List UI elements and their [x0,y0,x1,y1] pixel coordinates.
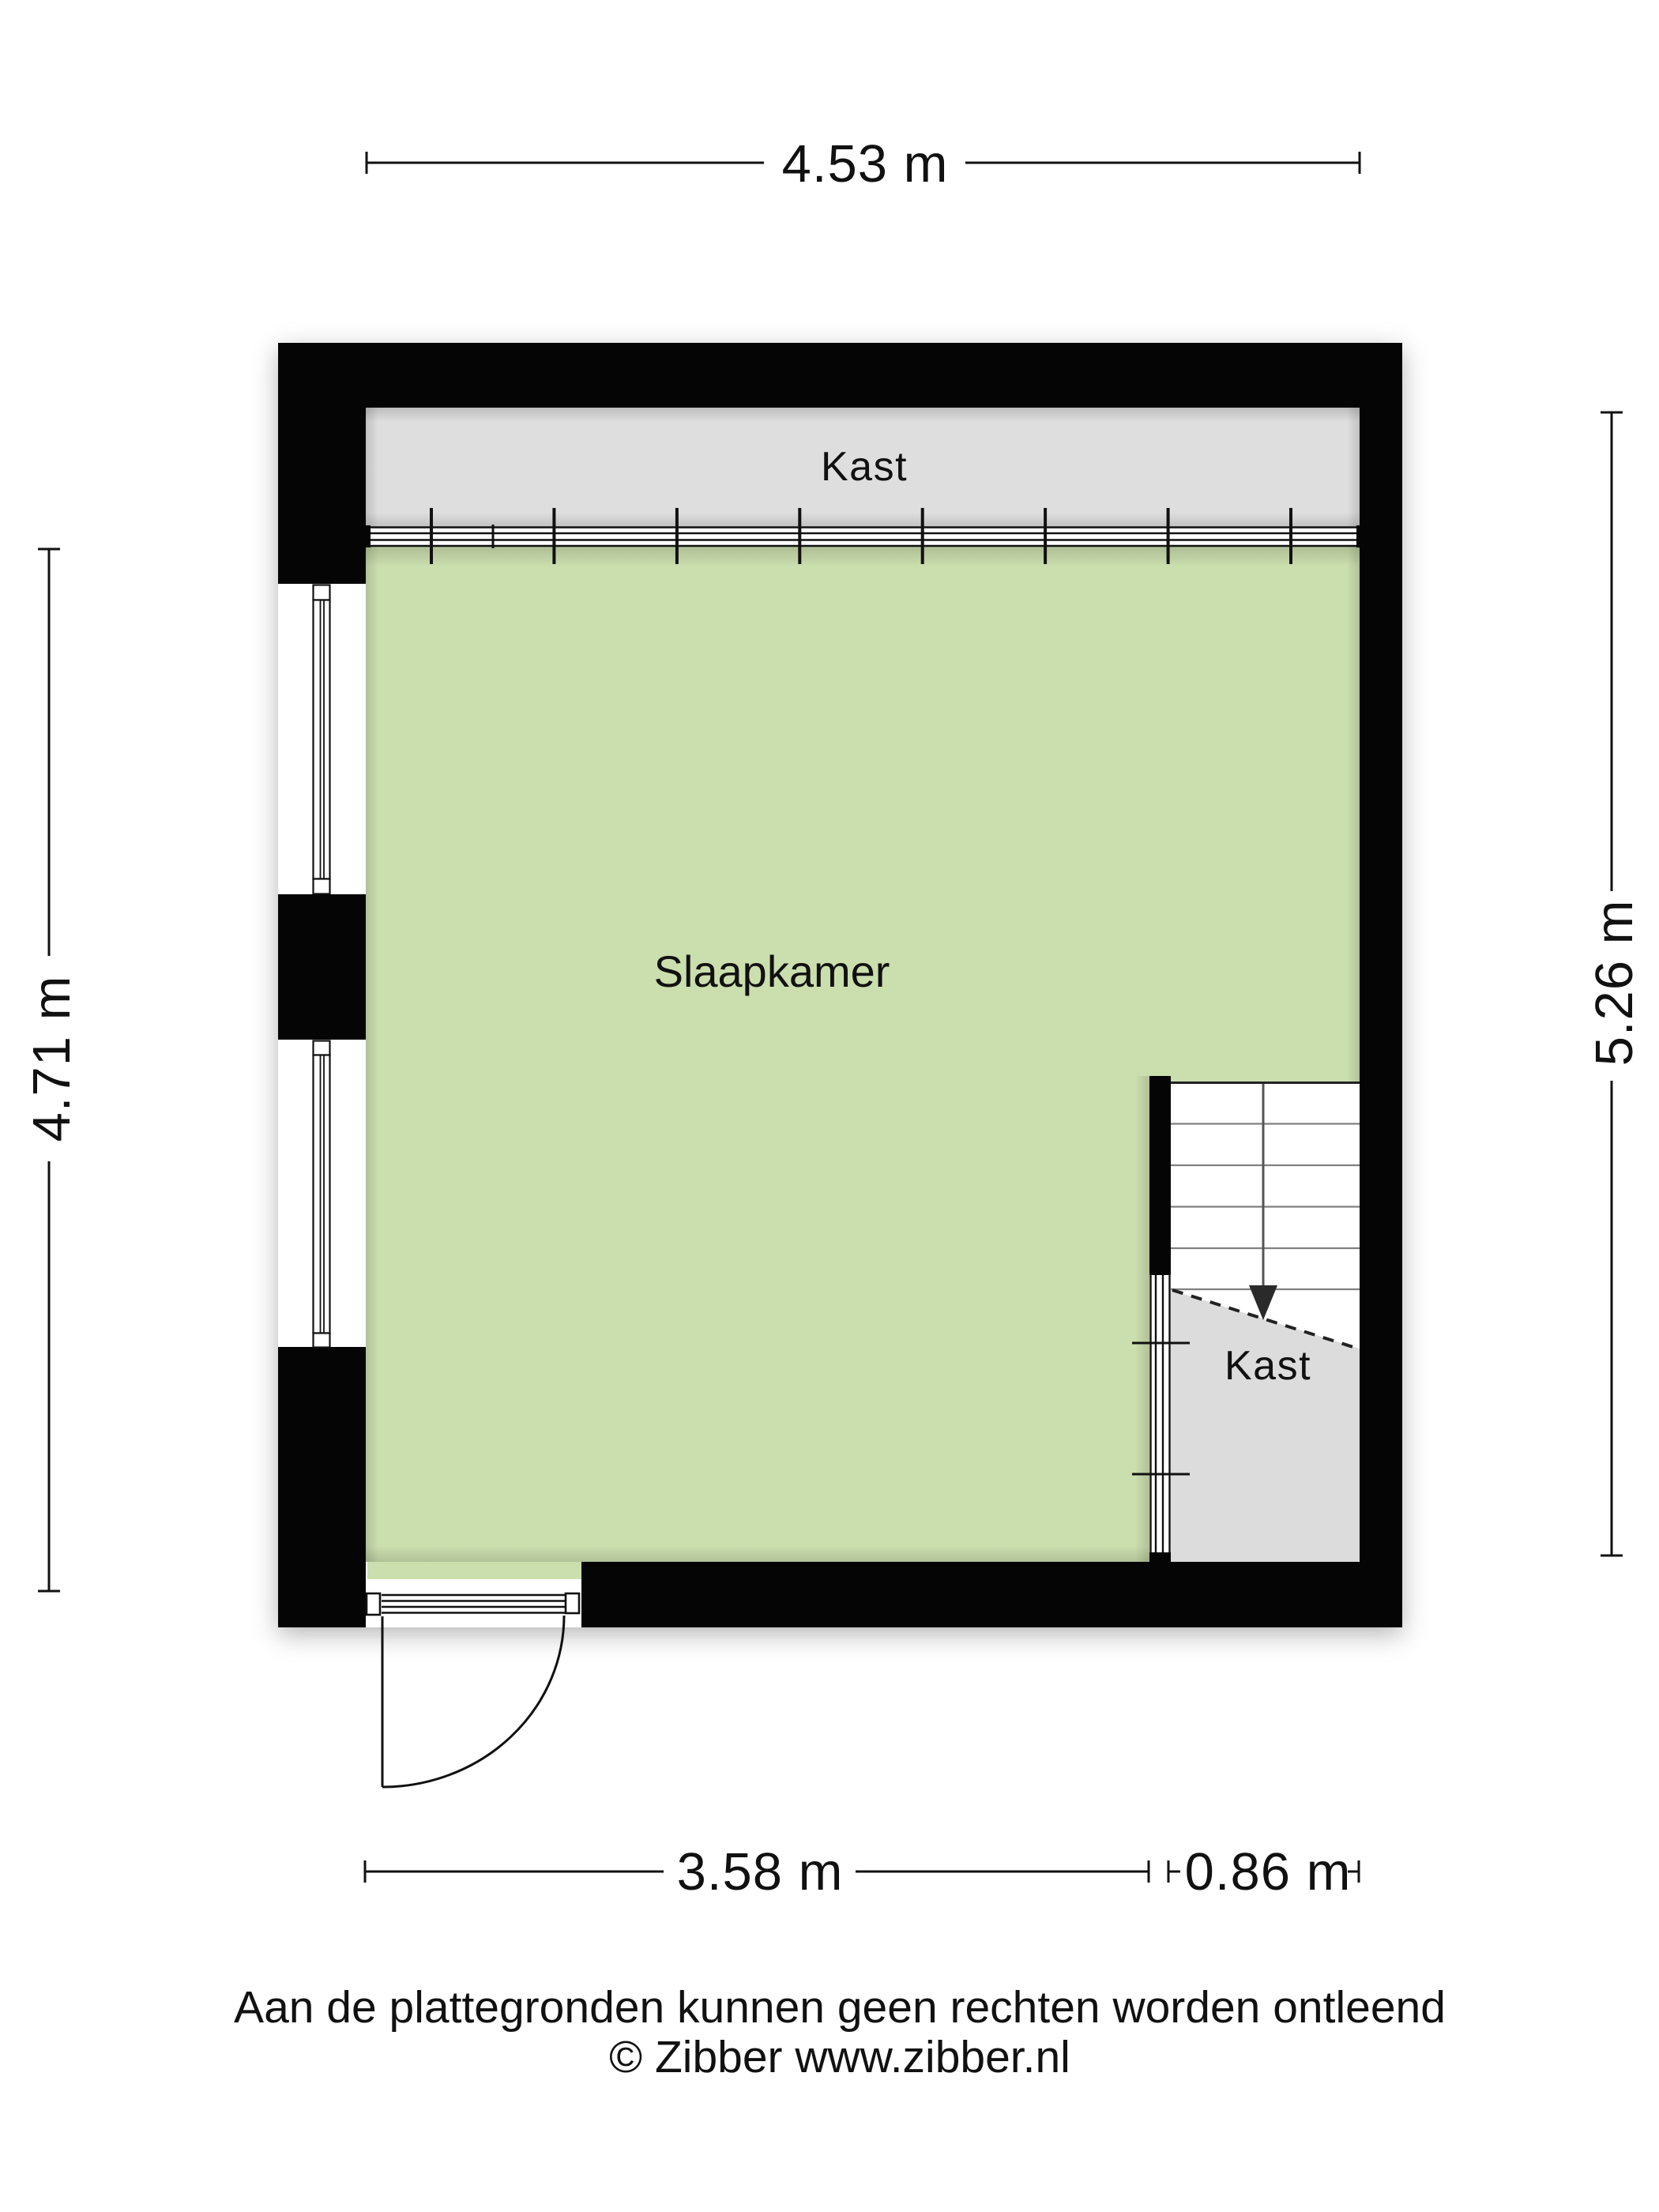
svg-text:© Zibber www.zibber.nl: © Zibber www.zibber.nl [609,2032,1070,2082]
svg-text:Kast: Kast [1224,1343,1311,1389]
svg-text:Kast: Kast [821,444,908,490]
svg-text:5.26 m: 5.26 m [1585,900,1644,1066]
svg-text:3.58 m: 3.58 m [677,1842,844,1902]
svg-text:Slaapkamer: Slaapkamer [654,946,890,996]
svg-text:4.53 m: 4.53 m [782,134,949,194]
svg-text:Aan de plattegronden kunnen ge: Aan de plattegronden kunnen geen rechten… [234,1982,1446,2033]
svg-text:0.86 m: 0.86 m [1185,1842,1352,1902]
svg-text:4.71 m: 4.71 m [22,976,81,1142]
